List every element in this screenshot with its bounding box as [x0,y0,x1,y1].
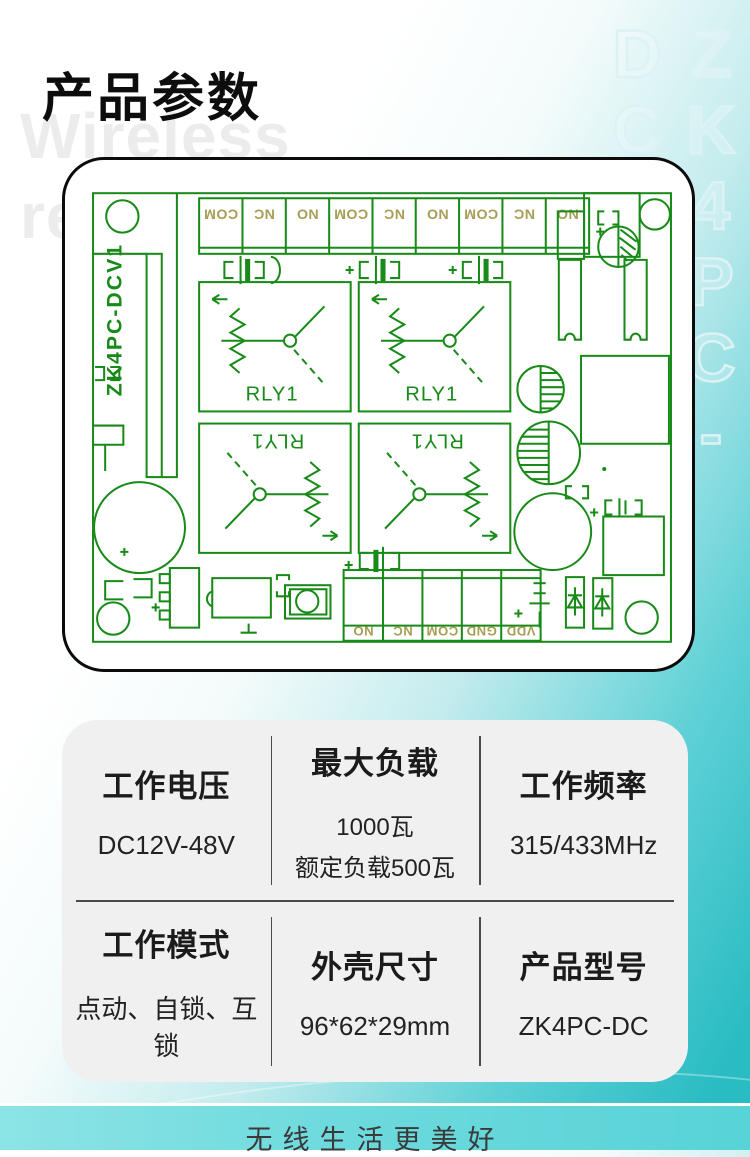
top-terminal-label: COM [334,206,368,222]
table-row-divider [76,900,674,902]
spec-label: 最大负载 [311,738,439,783]
bottom-terminal-label: VDD [506,624,535,639]
pcb-illustration-card: RLY1 ZK4PC-DCV1 [62,157,695,672]
spec-value: 96*62*29mm [300,1011,450,1042]
spec-cell-voltage: 工作电压 DC12V-48V [62,720,271,901]
spec-cell-frequency: 工作频率 315/433MHz [479,720,688,901]
top-terminal-label: NO [296,206,318,222]
spec-cell-work-mode: 工作模式 点动、自锁、互锁 [62,901,271,1082]
product-spec-page: { "page": { "title": "产品参数", "watermark_… [0,0,750,1150]
spec-label: 外壳尺寸 [311,942,439,987]
capacitor-symbols-top [224,256,502,284]
bottom-terminal-label: GND [466,624,497,639]
top-terminal-label: NO [556,206,578,222]
bottom-left-components [94,482,330,633]
spec-cell-model: 产品型号 ZK4PC-DC [479,901,688,1082]
pcb-silkscreen-drawing: RLY1 ZK4PC-DCV1 [89,191,675,646]
spec-table-card: 工作电压 DC12V-48V 最大负载 1000瓦 额定负载500瓦 工作频率 … [62,720,688,1082]
spec-label: 工作频率 [520,761,648,806]
page-title: 产品参数 [42,56,262,131]
bottom-terminal-label: NC [393,624,413,639]
spec-value-extra: 额定负载500瓦 [295,848,455,883]
top-terminal-block: COM NC NO COM NC NO COM NC NO [199,198,589,254]
top-terminal-label: COM [464,206,498,222]
top-terminal-label: NC [514,206,535,222]
top-terminal-label: NO [426,206,448,222]
spec-cell-shell-size: 外壳尺寸 96*62*29mm [271,901,480,1082]
top-terminal-label: NC [253,206,274,222]
spec-value: ZK4PC-DC [519,1011,649,1042]
spec-value: 1000瓦 [336,807,413,842]
spec-label: 工作模式 [102,920,230,965]
spec-cell-max-load: 最大负载 1000瓦 额定负载500瓦 [271,720,480,901]
right-middle-components [514,356,669,575]
top-terminal-label: NC [384,206,405,222]
bottom-terminal-label: NO [353,624,374,639]
spec-value: 点动、自锁、互锁 [66,989,267,1063]
relay-box-grid [199,282,510,553]
board-model-label: ZK4PC-DCV1 [103,243,126,396]
footer-band: 无线生活更美好 [0,1103,750,1150]
spec-value: DC12V-48V [98,830,235,861]
footer-slogan: 无线生活更美好 [246,1118,505,1150]
bottom-terminal-block: NO NC COM GND VDD [344,570,541,641]
spec-label: 产品型号 [520,942,648,987]
spec-label: 工作电压 [102,761,230,806]
bottom-right-components [514,577,612,629]
bottom-terminal-label: COM [426,624,458,639]
spec-value: 315/433MHz [510,830,657,861]
top-terminal-label: COM [204,206,238,222]
